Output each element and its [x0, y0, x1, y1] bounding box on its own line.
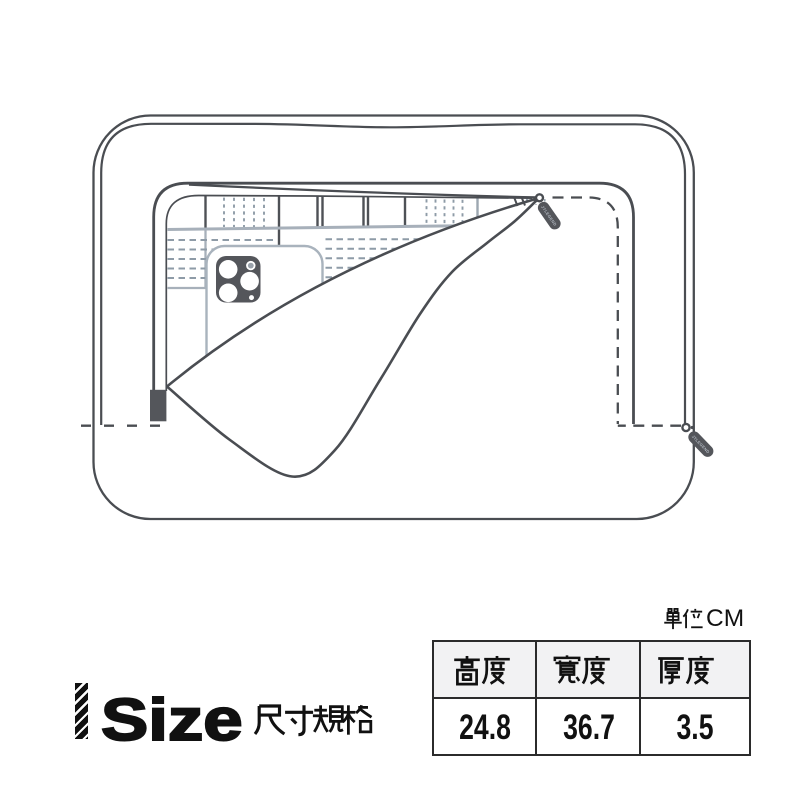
svg-text:JTLEGEND: JTLEGEND [540, 205, 558, 227]
svg-text:JTLEGEND: JTLEGEND [691, 434, 711, 455]
